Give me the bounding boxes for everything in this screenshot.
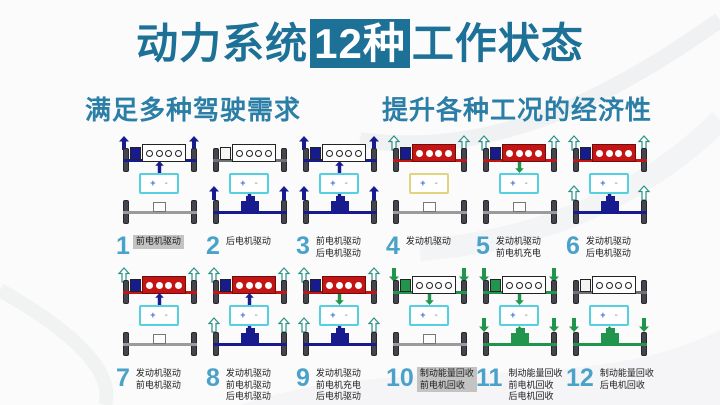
battery-icon: + - <box>589 173 629 194</box>
cylinder-icon <box>165 282 172 289</box>
diagram-canvas: + - <box>115 272 205 364</box>
subtitle-left: 满足多种驾驶需求 <box>85 90 301 127</box>
subtitle-row: 满足多种驾驶需求 提升各种工况的经济性 <box>85 90 652 127</box>
cylinder-icon <box>175 282 182 289</box>
cylinder-icon <box>156 282 163 289</box>
engine-icon <box>232 144 276 162</box>
cylinder-icon <box>625 282 632 289</box>
battery-front-down-arrow-icon <box>515 293 524 305</box>
diagram-caption: 7 发动机驱动前电机驱动 <box>115 367 205 392</box>
diagram-label-line: 前电机回收 <box>508 380 562 392</box>
cylinder-icon <box>265 150 272 157</box>
diagram-canvas: + - <box>475 140 565 232</box>
rear-wheel-left-up-arrow-icon <box>299 186 309 200</box>
engine-icon <box>412 276 456 294</box>
battery-plus: + <box>240 311 245 320</box>
diagram-label: 发动机驱动前电机充电 <box>493 235 544 260</box>
diagram-label-line: 制动能量回收 <box>508 368 562 380</box>
front-motor-icon <box>490 147 501 160</box>
battery-icon: + - <box>409 305 449 326</box>
cylinder-icon <box>445 282 452 289</box>
rear-wheel-right-up-arrow-icon <box>279 318 289 332</box>
battery-minus: - <box>164 311 167 321</box>
diagram-label-line: 前电机驱动 <box>316 236 361 248</box>
diagram-label-line: 前电机回收 <box>420 380 474 392</box>
diagram-number: 1 <box>116 235 130 259</box>
rear-wheel-right-up-arrow-icon <box>369 318 379 332</box>
battery-plus: + <box>600 179 605 188</box>
battery-minus: - <box>254 179 257 189</box>
engine-icon <box>142 144 186 162</box>
battery-plus: + <box>510 311 515 320</box>
powertrain-diagram-10: + - 10 制动能量回收前电机回收 <box>385 272 475 404</box>
diagram-canvas: + - <box>115 140 205 232</box>
battery-plus: + <box>150 179 155 188</box>
cylinder-icon <box>445 150 452 157</box>
front-motor-icon <box>220 147 231 160</box>
rear-gearbox-icon <box>153 202 166 212</box>
battery-plus: + <box>510 179 515 188</box>
cylinder-icon <box>525 150 532 157</box>
diagram-number: 12 <box>566 367 594 391</box>
diagram-label-line: 发动机驱动 <box>406 236 451 248</box>
powertrain-diagram-11: + - 11 制动能量回收前电机回收后电机回收 <box>475 272 565 404</box>
diagram-canvas: + - <box>565 140 655 232</box>
diagram-number: 9 <box>296 367 310 391</box>
cylinder-icon <box>516 282 523 289</box>
diagram-label-line: 发动机驱动 <box>136 368 181 380</box>
diagram-number: 3 <box>296 235 310 259</box>
cylinder-icon <box>615 150 622 157</box>
diagram-number: 5 <box>476 235 490 259</box>
battery-minus: - <box>254 311 257 321</box>
diagram-label-line: 发动机驱动 <box>496 236 541 248</box>
rear-motor-icon <box>601 333 619 344</box>
diagram-canvas: + - <box>205 140 295 232</box>
engine-icon <box>232 276 276 294</box>
cylinder-icon <box>146 150 153 157</box>
rear-gearbox-icon <box>153 334 166 344</box>
rear-gearbox-icon <box>423 202 436 212</box>
rear-wheel-left-up-arrow-icon <box>569 186 579 200</box>
cylinder-icon <box>255 282 262 289</box>
cylinder-icon <box>426 150 433 157</box>
battery-front-up-arrow-icon <box>155 293 164 305</box>
battery-minus: - <box>524 179 527 189</box>
battery-front-up-arrow-icon <box>155 161 164 173</box>
diagram-label-line: 后电机驱动 <box>586 248 631 260</box>
cylinder-icon <box>435 282 442 289</box>
diagram-label-line: 发动机驱动 <box>316 368 361 380</box>
rear-wheel-left-up-arrow-icon <box>209 186 219 200</box>
diagram-label-line: 前电机驱动 <box>136 236 181 248</box>
diagram-label-line: 前电机充电 <box>316 380 361 392</box>
battery-icon: + - <box>139 305 179 326</box>
diagram-number: 10 <box>386 367 414 391</box>
diagram-caption: 2 后电机驱动 <box>205 235 295 259</box>
powertrain-diagram-8: + - 8 发动机驱动前电机驱动后电机驱动 <box>205 272 295 404</box>
powertrain-diagram-7: + - 7 发动机驱动前电机驱动 <box>115 272 205 404</box>
diagram-caption: 3 前电机驱动后电机驱动 <box>295 235 385 260</box>
cylinder-icon <box>265 282 272 289</box>
diagram-label-line: 发动机驱动 <box>586 236 631 248</box>
cylinder-icon <box>236 150 243 157</box>
battery-icon: + - <box>499 305 539 326</box>
diagram-canvas: + - <box>295 272 385 364</box>
battery-plus: + <box>420 179 425 188</box>
front-motor-icon <box>130 147 141 160</box>
diagram-label-line: 后电机驱动 <box>226 236 271 248</box>
battery-icon: + - <box>139 173 179 194</box>
rear-motor-icon <box>601 201 619 212</box>
rear-motor-icon <box>331 333 349 344</box>
battery-minus: - <box>164 179 167 189</box>
cylinder-icon <box>326 150 333 157</box>
battery-minus: - <box>524 311 527 321</box>
front-motor-icon <box>580 147 591 160</box>
diagram-label: 发动机驱动前电机驱动 <box>133 367 184 392</box>
rear-motor-icon <box>511 333 529 344</box>
engine-icon <box>502 144 546 162</box>
battery-minus: - <box>434 179 437 189</box>
diagram-label: 前电机驱动后电机驱动 <box>313 235 364 260</box>
front-motor-icon <box>130 279 141 292</box>
rear-gearbox-icon <box>513 202 526 212</box>
cylinder-icon <box>596 150 603 157</box>
battery-icon: + - <box>499 173 539 194</box>
diagram-label: 前电机驱动 <box>133 235 184 249</box>
powertrain-diagram-12: + - 12 制动能量回收后电机回收 <box>565 272 655 404</box>
rear-wheel-right-up-arrow-icon <box>279 186 289 200</box>
powertrain-diagram-3: + - 3 前电机驱动后电机驱动 <box>295 140 385 272</box>
diagram-canvas: + - <box>565 272 655 364</box>
diagram-canvas: + - <box>475 272 565 364</box>
cylinder-icon <box>345 282 352 289</box>
cylinder-icon <box>606 150 613 157</box>
cylinder-icon <box>146 282 153 289</box>
battery-icon: + - <box>589 305 629 326</box>
engine-icon <box>412 144 456 162</box>
diagram-caption: 9 发动机驱动前电机充电后电机驱动 <box>295 367 385 404</box>
rear-wheel-left-up-arrow-icon <box>299 318 309 332</box>
cylinder-icon <box>525 282 532 289</box>
cylinder-icon <box>625 150 632 157</box>
battery-front-down-arrow-icon <box>425 293 434 305</box>
diagram-label-line: 前电机充电 <box>496 248 541 260</box>
cylinder-icon <box>175 150 182 157</box>
diagram-canvas: + - <box>205 272 295 364</box>
rear-wheel-right-down-arrow-icon <box>549 318 559 332</box>
rear-wheel-right-up-arrow-icon <box>369 186 379 200</box>
powertrain-diagram-2: + - 2 后电机驱动 <box>205 140 295 272</box>
cylinder-icon <box>336 282 343 289</box>
battery-minus: - <box>614 311 617 321</box>
cylinder-icon <box>535 282 542 289</box>
rear-motor-icon <box>241 333 259 344</box>
diagram-label-line: 后电机驱动 <box>316 248 361 260</box>
powertrain-diagram-6: + - 6 发动机驱动后电机驱动 <box>565 140 655 272</box>
diagram-caption: 12 制动能量回收后电机回收 <box>565 367 655 392</box>
battery-icon: + - <box>229 173 269 194</box>
cylinder-icon <box>535 150 542 157</box>
cylinder-icon <box>506 282 513 289</box>
cylinder-icon <box>416 282 423 289</box>
cylinder-icon <box>246 150 253 157</box>
diagram-label-line: 前电机驱动 <box>226 380 271 392</box>
battery-plus: + <box>330 311 335 320</box>
diagram-canvas: + - <box>295 140 385 232</box>
cylinder-icon <box>516 150 523 157</box>
battery-front-up-arrow-icon <box>245 293 254 305</box>
engine-icon <box>502 276 546 294</box>
diagram-canvas: + - <box>385 272 475 364</box>
cylinder-icon <box>506 150 513 157</box>
battery-icon: + - <box>409 173 449 194</box>
diagram-number: 2 <box>206 235 220 259</box>
title-pre: 动力系统 <box>136 20 308 67</box>
rear-wheel-left-up-arrow-icon <box>209 318 219 332</box>
engine-icon <box>142 276 186 294</box>
engine-icon <box>592 276 636 294</box>
cylinder-icon <box>355 282 362 289</box>
battery-icon: + - <box>319 173 359 194</box>
battery-icon: + - <box>229 305 269 326</box>
diagram-label: 制动能量回收后电机回收 <box>597 367 657 392</box>
subtitle-right: 提升各种工况的经济性 <box>382 90 652 127</box>
battery-plus: + <box>240 179 245 188</box>
battery-plus: + <box>420 311 425 320</box>
diagram-label-line: 发动机驱动 <box>226 368 271 380</box>
cylinder-icon <box>355 150 362 157</box>
front-motor-icon <box>310 279 321 292</box>
diagram-label: 后电机驱动 <box>223 235 274 249</box>
diagram-label-line: 制动能量回收 <box>600 368 654 380</box>
cylinder-icon <box>416 150 423 157</box>
front-motor-icon <box>220 279 231 292</box>
title-post: 工作状态 <box>412 20 584 67</box>
battery-front-up-arrow-icon <box>335 161 344 173</box>
cylinder-icon <box>426 282 433 289</box>
front-motor-icon <box>490 279 501 292</box>
rear-wheel-right-down-arrow-icon <box>639 318 649 332</box>
diagram-label: 制动能量回收前电机回收后电机回收 <box>505 367 565 404</box>
rear-wheel-right-up-arrow-icon <box>639 186 649 200</box>
diagram-label-line: 制动能量回收 <box>420 368 474 380</box>
cylinder-icon <box>615 282 622 289</box>
diagram-caption: 6 发动机驱动后电机驱动 <box>565 235 655 260</box>
battery-icon: + - <box>319 305 359 326</box>
diagram-label-line: 后电机驱动 <box>316 391 361 403</box>
powertrain-diagram-4: + - 4 发动机驱动 <box>385 140 475 272</box>
battery-minus: - <box>344 179 347 189</box>
battery-plus: + <box>150 311 155 320</box>
front-motor-icon <box>400 279 411 292</box>
diagram-canvas: + - <box>385 140 475 232</box>
diagram-label: 发动机驱动后电机驱动 <box>583 235 634 260</box>
cylinder-icon <box>345 150 352 157</box>
diagram-number: 8 <box>206 367 220 391</box>
battery-minus: - <box>344 311 347 321</box>
cylinder-icon <box>165 150 172 157</box>
powertrain-diagram-5: + - 5 发动机驱动前电机充电 <box>475 140 565 272</box>
rear-motor-icon <box>331 201 349 212</box>
engine-icon <box>592 144 636 162</box>
slide: 动力系统12种工作状态 满足多种驾驶需求 提升各种工况的经济性 + - 1 前电… <box>0 0 720 405</box>
cylinder-icon <box>156 150 163 157</box>
diagram-label-line: 后电机驱动 <box>226 391 271 403</box>
cylinder-icon <box>255 150 262 157</box>
diagram-caption: 4 发动机驱动 <box>385 235 475 259</box>
rear-wheel-left-down-arrow-icon <box>569 318 579 332</box>
diagram-label: 制动能量回收前电机回收 <box>417 367 477 392</box>
engine-icon <box>322 144 366 162</box>
cylinder-icon <box>246 282 253 289</box>
cylinder-icon <box>596 282 603 289</box>
diagram-number: 6 <box>566 235 580 259</box>
diagram-label: 发动机驱动前电机充电后电机驱动 <box>313 367 364 404</box>
battery-minus: - <box>434 311 437 321</box>
diagram-number: 11 <box>476 367 502 391</box>
diagram-caption: 8 发动机驱动前电机驱动后电机驱动 <box>205 367 295 404</box>
diagram-number: 4 <box>386 235 400 259</box>
cylinder-icon <box>326 282 333 289</box>
battery-front-down-arrow-icon <box>335 293 344 305</box>
title-highlight: 12种 <box>310 19 410 68</box>
diagram-grid: + - 1 前电机驱动 + - 2 后电机驱动 + - <box>115 140 655 404</box>
front-motor-icon <box>310 147 321 160</box>
rear-motor-icon <box>241 201 259 212</box>
diagram-label-line: 前电机驱动 <box>136 380 181 392</box>
powertrain-diagram-9: + - 9 发动机驱动前电机充电后电机驱动 <box>295 272 385 404</box>
battery-plus: + <box>600 311 605 320</box>
diagram-caption: 11 制动能量回收前电机回收后电机回收 <box>475 367 565 404</box>
cylinder-icon <box>606 282 613 289</box>
battery-plus: + <box>330 179 335 188</box>
powertrain-diagram-1: + - 1 前电机驱动 <box>115 140 205 272</box>
diagram-label-line: 后电机回收 <box>600 380 654 392</box>
diagram-label: 发动机驱动前电机驱动后电机驱动 <box>223 367 274 404</box>
diagram-caption: 1 前电机驱动 <box>115 235 205 259</box>
battery-front-down-arrow-icon <box>515 161 524 173</box>
diagram-caption: 5 发动机驱动前电机充电 <box>475 235 565 260</box>
cylinder-icon <box>435 150 442 157</box>
engine-icon <box>322 276 366 294</box>
diagram-number: 7 <box>116 367 130 391</box>
front-motor-icon <box>400 147 411 160</box>
cylinder-icon <box>236 282 243 289</box>
diagram-label-line: 后电机回收 <box>508 391 562 403</box>
battery-minus: - <box>614 179 617 189</box>
cylinder-icon <box>336 150 343 157</box>
rear-gearbox-icon <box>423 334 436 344</box>
page-title: 动力系统12种工作状态 <box>0 10 720 71</box>
rear-wheel-left-down-arrow-icon <box>479 318 489 332</box>
diagram-label: 发动机驱动 <box>403 235 454 249</box>
front-motor-icon <box>580 279 591 292</box>
diagram-caption: 10 制动能量回收前电机回收 <box>385 367 475 392</box>
